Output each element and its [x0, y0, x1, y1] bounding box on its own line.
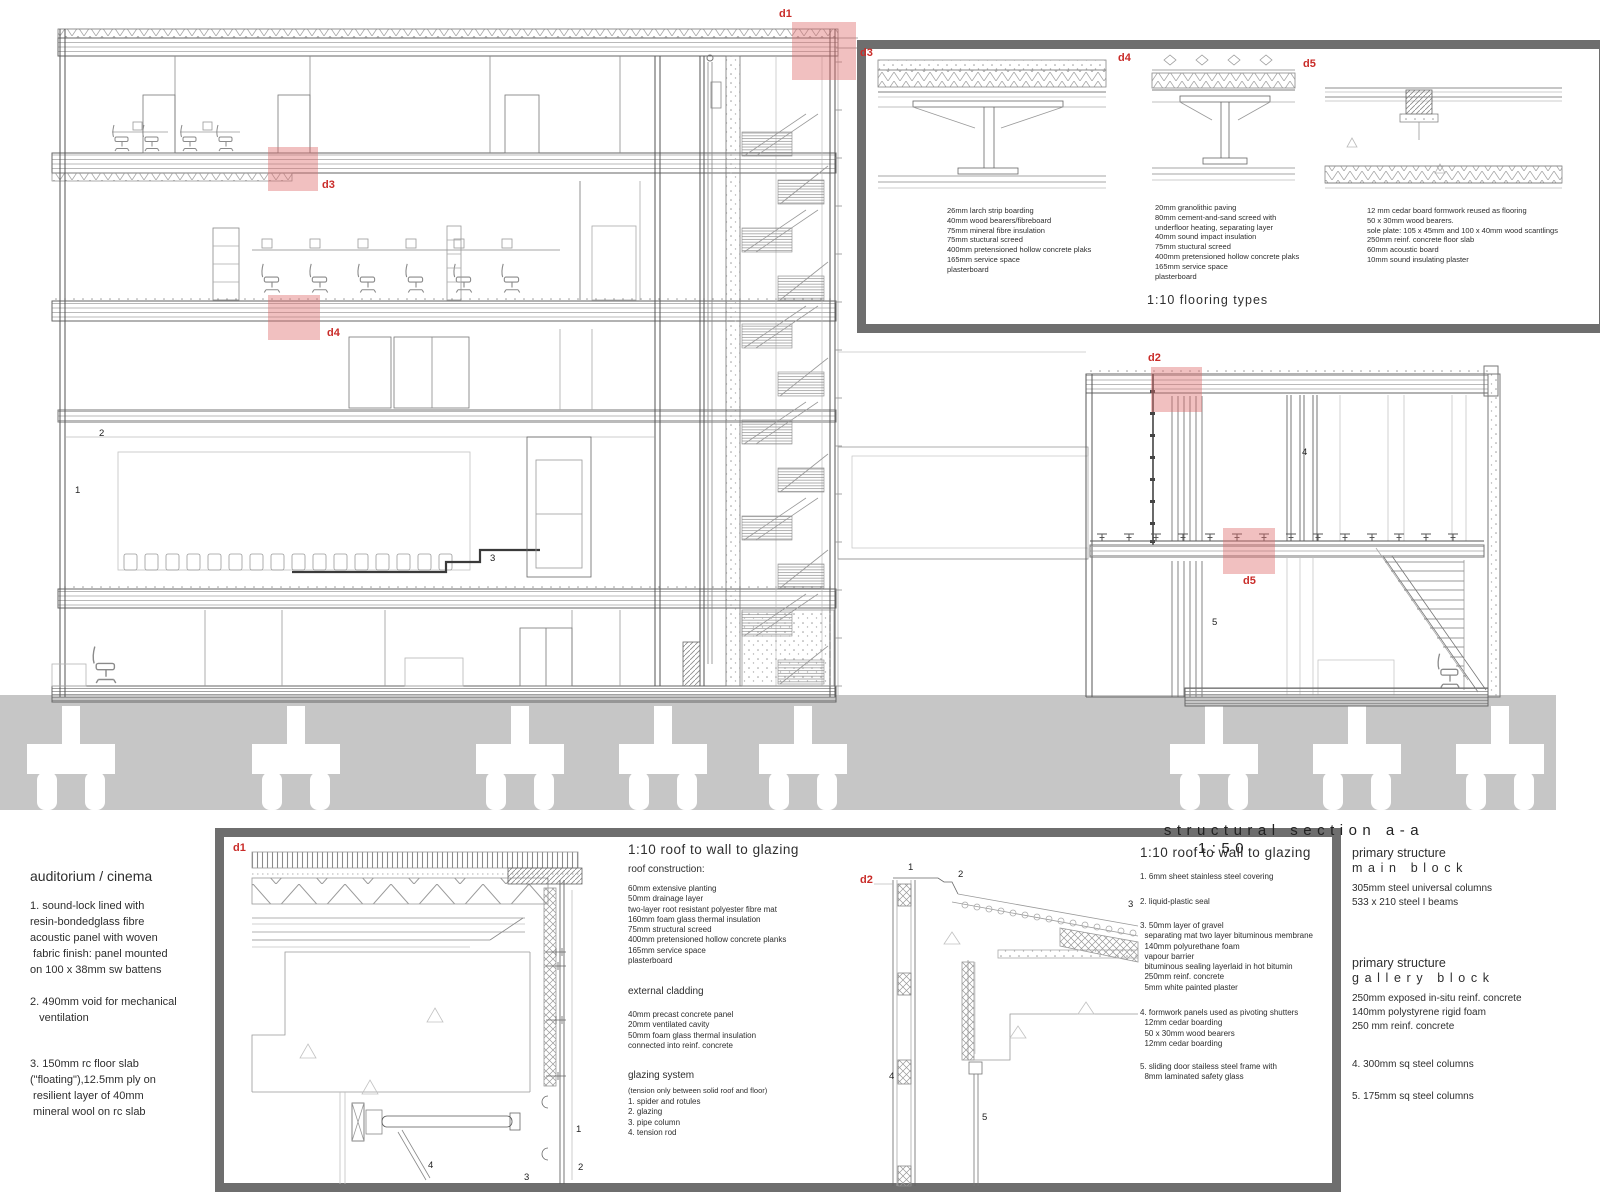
- d1-annotation-4: 4: [428, 1160, 433, 1171]
- label-d4-main: d4: [327, 327, 340, 339]
- highlight-d1: [792, 22, 856, 80]
- primary-structure-note-5: 5. 175mm sq steel columns: [1352, 1090, 1474, 1104]
- external-cladding-heading: external cladding: [628, 986, 704, 997]
- annotation-4: 4: [1302, 447, 1307, 458]
- annotation-3: 3: [490, 553, 495, 564]
- glazing-right-item-3: 3. 50mm layer of gravel separating mat t…: [1140, 921, 1335, 993]
- d2-annotation-4: 4: [889, 1071, 894, 1082]
- label-d1-panel: d1: [233, 842, 246, 854]
- architectural-sheet: d1 d3 d4 d2 d5 d3 d4 d5 d1 d2 1 2 3 4 5 …: [0, 0, 1600, 1200]
- roof-construction-heading: roof construction:: [628, 864, 705, 875]
- d5-construction-notes: 12 mm cedar board formwork reused as flo…: [1367, 206, 1582, 265]
- annotation-1: 1: [75, 485, 80, 496]
- primary-structure-gallery-subtitle: gallery block: [1352, 971, 1495, 985]
- glazing-left-title: 1:10 roof to wall to glazing: [628, 842, 799, 857]
- d2-annotation-3: 3: [1128, 899, 1133, 910]
- d2-annotation-1: 1: [908, 862, 913, 873]
- glazing-right-item-1: 1. 6mm sheet stainless steel covering: [1140, 872, 1273, 882]
- label-d2-panel: d2: [860, 874, 873, 886]
- primary-structure-gallery-lines: 250mm exposed in-situ reinf. concrete 14…: [1352, 992, 1582, 1034]
- external-cladding-lines: 40mm precast concrete panel 20mm ventila…: [628, 1010, 853, 1051]
- primary-structure-note-4: 4. 300mm sq steel columns: [1352, 1058, 1474, 1072]
- d1-annotation-2: 2: [578, 1162, 583, 1173]
- d1-annotation-1: 1: [576, 1124, 581, 1135]
- glazing-right-title: 1:10 roof to wall to glazing: [1140, 845, 1311, 860]
- d3-construction-notes: 26mm larch strip boarding 40mm wood bear…: [947, 206, 1152, 275]
- annotation-2: 2: [99, 428, 104, 439]
- annotation-5: 5: [1212, 617, 1217, 628]
- label-d1-main: d1: [779, 8, 792, 20]
- d1-annotation-3: 3: [524, 1172, 529, 1183]
- highlight-d4: [268, 295, 320, 340]
- highlight-d3: [268, 147, 318, 191]
- flooring-panel-title: 1:10 flooring types: [1147, 293, 1268, 307]
- glazing-right-item-2: 2. liquid-plastic seal: [1140, 897, 1210, 907]
- label-d4-panel: d4: [1118, 52, 1131, 64]
- glazing-system-subtitle: (tension only between solid roof and flo…: [628, 1086, 767, 1096]
- label-d3-panel: d3: [860, 47, 873, 59]
- primary-structure-main-title: primary structure: [1352, 846, 1446, 860]
- label-d3-main: d3: [322, 179, 335, 191]
- primary-structure-main-lines: 305mm steel universal columns 533 x 210 …: [1352, 882, 1582, 910]
- label-d5-main: d5: [1243, 575, 1256, 587]
- d2-annotation-2: 2: [958, 869, 963, 880]
- glazing-system-lines: 1. spider and rotules 2. glazing 3. pipe…: [628, 1097, 853, 1138]
- link-corridor: [838, 447, 1088, 559]
- primary-structure-gallery-title: primary structure: [1352, 956, 1446, 970]
- label-d5-panel: d5: [1303, 58, 1316, 70]
- sheet-title-text: structural section a-a: [1164, 822, 1424, 839]
- auditorium-note-2: 2. 490mm void for mechanical ventilation: [30, 994, 230, 1026]
- glazing-system-heading: glazing system: [628, 1070, 694, 1081]
- glazing-right-item-5: 5. sliding door stailess steel frame wit…: [1140, 1062, 1335, 1083]
- d4-construction-notes: 20mm granolithic paving 80mm cement-and-…: [1155, 203, 1335, 281]
- auditorium-notes-title: auditorium / cinema: [30, 868, 152, 884]
- gallery-block-section: [1086, 366, 1500, 706]
- roof-construction-lines: 60mm extensive planting 50mm drainage la…: [628, 884, 853, 966]
- auditorium-note-1: 1. sound-lock lined with resin-bondedgla…: [30, 898, 230, 978]
- glazing-right-item-4: 4. formwork panels used as pivoting shut…: [1140, 1008, 1335, 1049]
- d2-annotation-5: 5: [982, 1112, 987, 1123]
- primary-structure-main-subtitle: main block: [1352, 861, 1468, 875]
- label-d2-main: d2: [1148, 352, 1161, 364]
- highlight-d2: [1151, 367, 1202, 412]
- highlight-d5: [1223, 528, 1275, 574]
- auditorium-note-3: 3. 150mm rc floor slab ("floating"),12.5…: [30, 1056, 230, 1120]
